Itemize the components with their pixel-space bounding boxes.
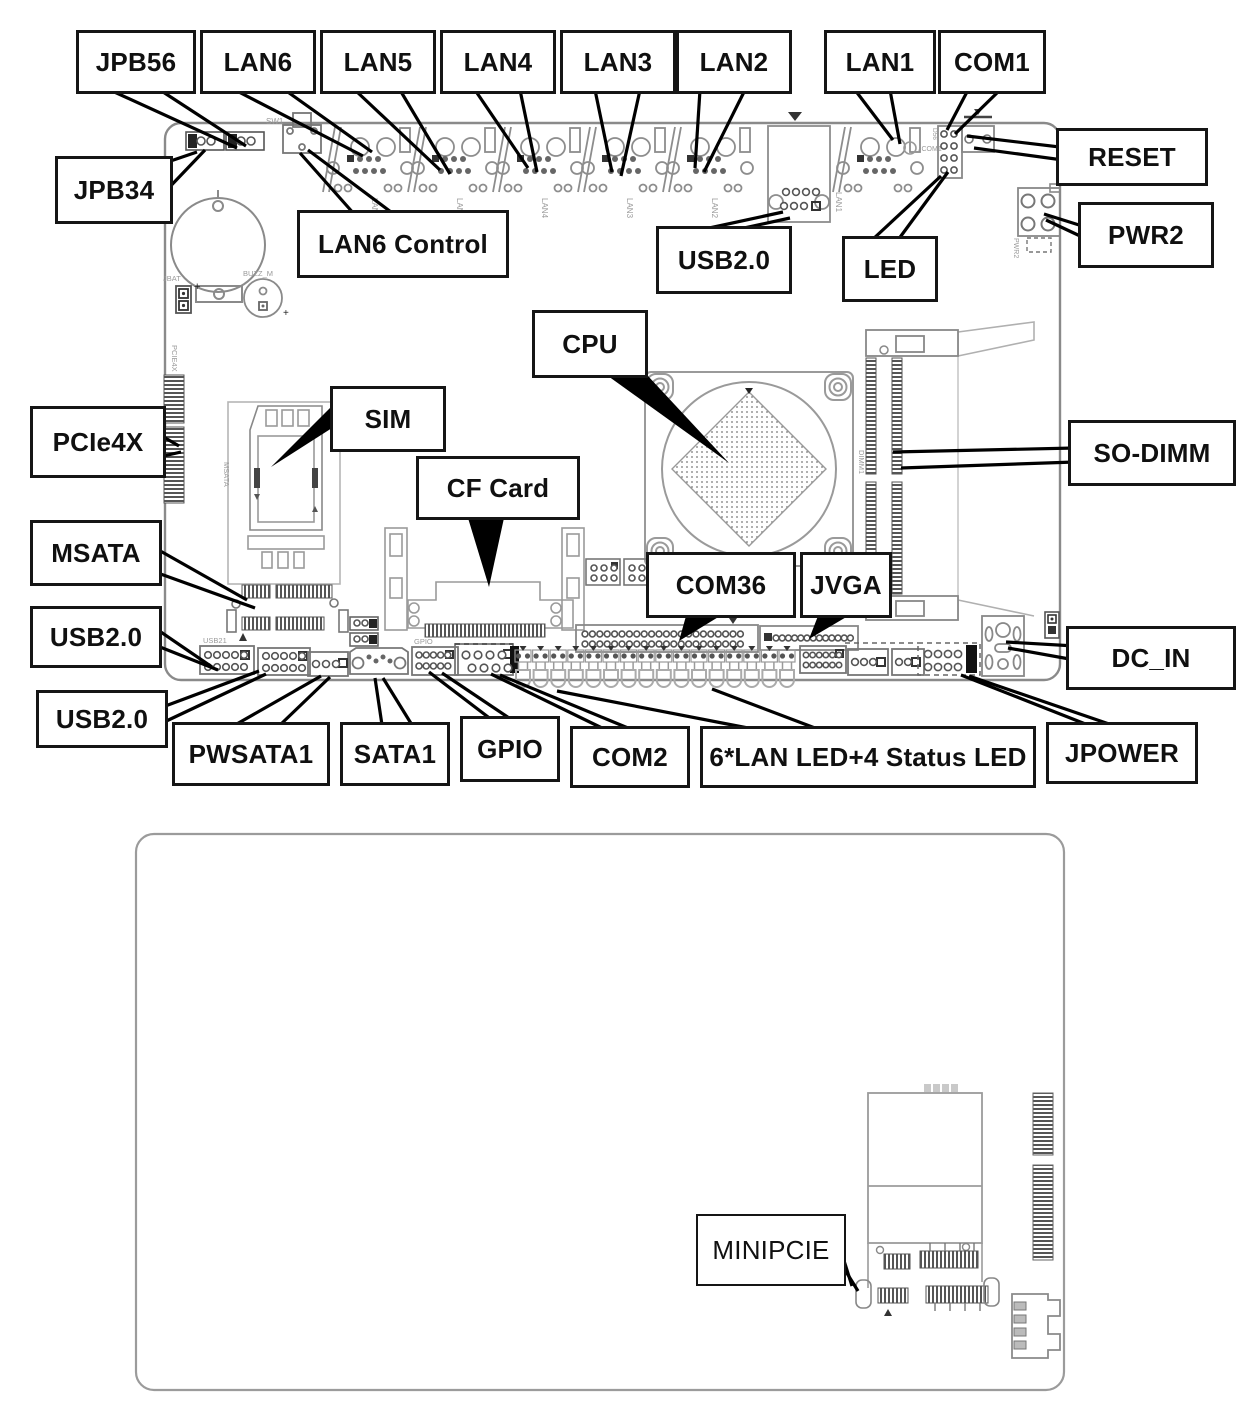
callout-sim: SIM: [330, 386, 446, 452]
silkscreen-lan3: LAN3: [625, 198, 634, 219]
callout-label: COM2: [592, 742, 668, 773]
callout-label: DC_IN: [1111, 643, 1190, 674]
callout-label: 6*LAN LED+4 Status LED: [709, 742, 1026, 773]
silkscreen-pcie4x: PCIE4X: [170, 345, 179, 372]
callout-label: JPOWER: [1065, 738, 1179, 769]
callout-label: JPB34: [74, 175, 155, 206]
callout-label: PWSATA1: [189, 739, 314, 770]
callout-label: COM1: [954, 47, 1030, 78]
callout-lan5: LAN5: [320, 30, 436, 94]
callout-label: MSATA: [51, 538, 141, 569]
callout-label: USB2.0: [50, 622, 142, 653]
callout-lan6: LAN6: [200, 30, 316, 94]
callout-cpu: CPU: [532, 310, 648, 378]
callout-label: LAN2: [700, 47, 769, 78]
callout-led: LED: [842, 236, 938, 302]
callout-usb20-left-lower: USB2.0: [36, 690, 168, 748]
callout-label: LAN1: [846, 47, 915, 78]
pcie4x-fingers: [164, 375, 184, 423]
callout-label: PWR2: [1108, 220, 1184, 251]
silkscreen-usb21: USB21: [203, 636, 227, 645]
callout-jpb34: JPB34: [55, 156, 173, 224]
callout-label: COM36: [676, 570, 767, 601]
callout-lan3: LAN3: [560, 30, 676, 94]
callout-label: SIM: [365, 404, 412, 435]
callout-pcie4x: PCIe4X: [30, 406, 166, 478]
silkscreen-pwr2: PWR2: [1012, 238, 1019, 258]
callout-label: CPU: [562, 329, 618, 360]
silkscreen-dimm1: DIMM1: [857, 450, 866, 474]
callout-label: LAN5: [344, 47, 413, 78]
callout-label: MINIPCIE: [712, 1235, 829, 1266]
callout-dc-in: DC_IN: [1066, 626, 1236, 690]
rear-edge-fingers: [1033, 1165, 1053, 1260]
callout-label: SATA1: [354, 739, 436, 770]
callout-com2: COM2: [570, 726, 690, 788]
callout-cf-card: CF Card: [416, 456, 580, 520]
board-artwork: SW1 LAN6 LAN5 LAN4 LAN3 LAN2 LAN1 D56 JC…: [0, 0, 1248, 1424]
silkscreen-lan1: LAN1: [834, 192, 843, 213]
bottom-board: [136, 834, 1064, 1390]
callout-label: SO-DIMM: [1094, 438, 1211, 469]
silkscreen-buzzer: BUZZ_M: [243, 269, 273, 278]
callout-label: CF Card: [447, 473, 550, 504]
silkscreen-lan2: LAN2: [710, 198, 719, 219]
callout-label: JVGA: [810, 570, 882, 601]
callout-lan2: LAN2: [676, 30, 792, 94]
callout-label: LAN6 Control: [318, 229, 488, 260]
callout-sata1: SATA1: [340, 722, 450, 786]
callout-pwr2: PWR2: [1078, 202, 1214, 268]
pin1-mark: [369, 619, 377, 628]
callout-lan1: LAN1: [824, 30, 936, 94]
callout-label: LAN4: [464, 47, 533, 78]
silkscreen-sw1: SW1: [266, 117, 284, 126]
callout-usb20-left-upper: USB2.0: [30, 606, 162, 668]
silkscreen-d56: D56: [931, 128, 938, 140]
silkscreen-lan4: LAN4: [540, 198, 549, 219]
callout-jvga: JVGA: [800, 552, 892, 618]
callout-com36: COM36: [646, 552, 796, 618]
callout-label: USB2.0: [678, 245, 770, 276]
callout-label: PCIe4X: [53, 427, 144, 458]
jpower-bracket: [966, 645, 977, 673]
buzzer-plus-mark: +: [283, 308, 289, 319]
callout-label: LAN3: [584, 47, 653, 78]
pin1-mark: [369, 635, 377, 644]
rear-edge-fingers: [1033, 1093, 1053, 1155]
callout-gpio: GPIO: [460, 716, 560, 782]
callout-label: LAN6: [224, 47, 293, 78]
callout-label: LED: [864, 254, 917, 285]
pin1-mark: [764, 633, 772, 641]
callout-sodimm: SO-DIMM: [1068, 420, 1236, 486]
callout-msata: MSATA: [30, 520, 162, 586]
callout-lan6-control: LAN6 Control: [297, 210, 509, 278]
callout-minipcie: MINIPCIE: [696, 1214, 846, 1286]
callout-lan-status-led: 6*LAN LED+4 Status LED: [700, 726, 1036, 788]
callout-usb20-top: USB2.0: [656, 226, 792, 294]
callout-jpb56: JPB56: [76, 30, 196, 94]
callout-jpower: JPOWER: [1046, 722, 1198, 784]
callout-label: RESET: [1088, 142, 1176, 173]
silkscreen-msata: MSATA: [222, 462, 231, 487]
top-board: SW1 LAN6 LAN5 LAN4 LAN3 LAN2 LAN1 D56 JC…: [163, 109, 1060, 687]
callout-pwsata1: PWSATA1: [172, 722, 330, 786]
silkscreen-gpio: GPIO: [414, 637, 433, 646]
callout-lan4: LAN4: [440, 30, 556, 94]
callout-reset: RESET: [1056, 128, 1208, 186]
silkscreen-jbat: JBAT: [163, 274, 181, 283]
battery-plus-mark: +: [194, 281, 200, 293]
motherboard-diagram: SW1 LAN6 LAN5 LAN4 LAN3 LAN2 LAN1 D56 JC…: [0, 0, 1248, 1424]
callout-label: USB2.0: [56, 704, 148, 735]
silkscreen-jcom1: JCOM1: [918, 146, 942, 153]
callout-label: JPB56: [96, 47, 177, 78]
callout-label: GPIO: [477, 734, 543, 765]
callout-com1: COM1: [938, 30, 1046, 94]
